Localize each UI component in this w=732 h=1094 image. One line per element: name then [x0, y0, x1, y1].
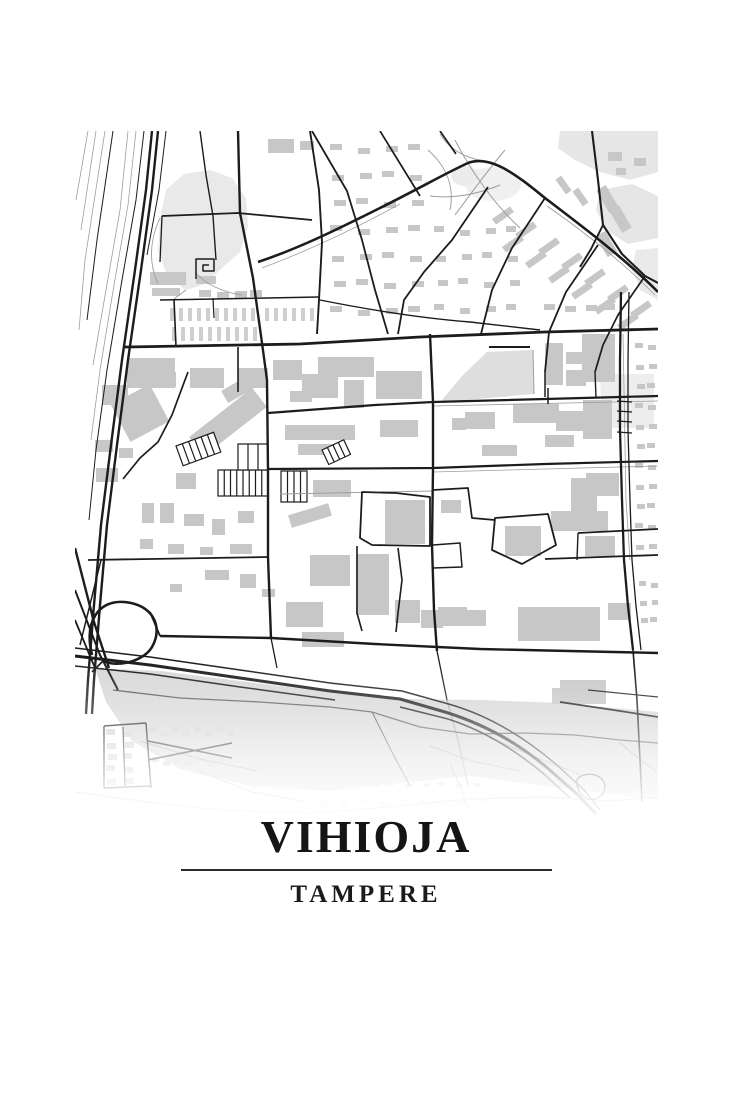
building: [218, 757, 225, 762]
building: [233, 308, 237, 321]
building: [566, 352, 582, 364]
building: [320, 773, 327, 777]
building: [183, 731, 190, 736]
building: [200, 547, 213, 555]
building: [376, 371, 422, 399]
building: [648, 405, 656, 410]
building: [382, 171, 394, 177]
building: [181, 327, 185, 341]
building: [125, 778, 134, 784]
building: [649, 484, 657, 489]
building: [188, 308, 192, 321]
building: [513, 404, 559, 423]
building: [408, 144, 420, 150]
building: [637, 444, 645, 449]
building: [440, 772, 447, 776]
building: [452, 418, 466, 430]
building: [360, 173, 372, 179]
building: [384, 283, 396, 289]
building: [244, 327, 248, 341]
building: [586, 766, 594, 771]
building: [124, 731, 133, 737]
building: [636, 485, 644, 490]
building: [168, 544, 184, 554]
building: [185, 761, 192, 766]
building: [586, 305, 597, 311]
building: [380, 420, 418, 437]
building: [583, 400, 612, 439]
building: [285, 425, 355, 440]
building: [274, 308, 278, 321]
building: [386, 227, 398, 233]
building: [647, 503, 655, 508]
building: [253, 327, 257, 341]
building: [217, 292, 229, 299]
building: [438, 782, 445, 786]
building: [215, 308, 219, 321]
building: [197, 308, 201, 321]
building: [285, 782, 292, 786]
building: [303, 784, 310, 788]
building: [270, 783, 277, 787]
building: [508, 256, 518, 262]
building: [628, 762, 636, 767]
building: [205, 731, 212, 736]
building: [637, 504, 645, 509]
building: [486, 228, 496, 234]
building: [334, 200, 346, 206]
building: [551, 511, 608, 531]
building: [163, 761, 170, 766]
building: [635, 403, 643, 408]
building: [648, 345, 656, 350]
building: [321, 783, 328, 787]
building: [474, 783, 481, 787]
building: [405, 784, 412, 788]
building: [199, 290, 211, 297]
building: [190, 368, 224, 388]
building: [106, 765, 115, 771]
building: [412, 200, 424, 206]
building: [434, 226, 444, 232]
building: [608, 152, 622, 161]
building: [479, 799, 485, 803]
building: [460, 308, 470, 314]
building: [462, 254, 472, 260]
building: [640, 601, 647, 606]
building: [196, 276, 216, 284]
building: [606, 778, 614, 783]
building: [226, 327, 230, 341]
building: [170, 584, 182, 592]
building: [560, 680, 606, 704]
building: [108, 754, 117, 760]
building: [106, 729, 115, 735]
road: [577, 533, 578, 560]
building: [334, 281, 346, 287]
building: [301, 308, 305, 321]
building: [455, 771, 462, 775]
building: [170, 308, 174, 321]
building: [458, 278, 468, 284]
building: [140, 539, 153, 549]
building: [641, 618, 648, 623]
building: [408, 306, 420, 312]
building: [389, 772, 396, 776]
building: [610, 764, 618, 769]
building: [556, 411, 584, 431]
building: [227, 731, 234, 736]
building: [588, 780, 596, 785]
building: [107, 743, 116, 749]
building: [401, 800, 407, 804]
building: [160, 503, 174, 523]
building: [216, 727, 223, 732]
building: [292, 308, 296, 321]
building: [287, 772, 294, 776]
building: [506, 304, 516, 310]
building: [313, 480, 351, 497]
building: [410, 175, 422, 181]
building: [634, 158, 646, 166]
building: [510, 280, 520, 286]
building: [635, 343, 643, 348]
building: [212, 519, 225, 535]
building: [179, 308, 183, 321]
map-canvas: [75, 131, 658, 845]
building: [385, 500, 425, 544]
building: [286, 602, 323, 627]
building: [544, 304, 555, 310]
building: [387, 782, 394, 786]
building: [172, 727, 179, 732]
building: [302, 771, 309, 775]
building: [176, 473, 196, 489]
building: [269, 773, 276, 777]
building: [408, 225, 420, 231]
building: [190, 327, 194, 341]
building: [332, 256, 344, 262]
map-poster: VIHIOJA TAMPERE: [0, 0, 732, 1094]
title-divider: [181, 869, 552, 871]
building: [107, 779, 116, 785]
building: [359, 799, 365, 803]
building: [268, 139, 294, 153]
building: [194, 727, 201, 732]
building: [252, 784, 259, 788]
building: [608, 750, 616, 755]
building: [434, 304, 444, 310]
building: [217, 327, 221, 341]
building: [124, 767, 133, 773]
building: [380, 801, 386, 805]
building: [336, 782, 343, 786]
building: [152, 288, 180, 296]
building: [205, 570, 229, 580]
building: [438, 280, 448, 286]
city-map: [75, 131, 658, 845]
building: [119, 448, 133, 458]
building: [506, 226, 516, 232]
building: [637, 384, 645, 389]
building: [341, 800, 347, 804]
building: [358, 310, 370, 316]
building: [230, 544, 252, 554]
building: [356, 554, 389, 615]
building: [473, 773, 480, 777]
building: [320, 801, 326, 805]
building: [358, 148, 370, 154]
building: [371, 773, 378, 777]
building: [419, 799, 425, 803]
building: [441, 500, 461, 513]
building: [635, 523, 643, 528]
building: [206, 308, 210, 321]
building: [208, 327, 212, 341]
building: [152, 372, 176, 387]
building: [330, 306, 342, 312]
building: [423, 783, 430, 787]
building: [518, 607, 600, 641]
building: [649, 364, 657, 369]
building: [242, 308, 246, 321]
building: [630, 782, 638, 787]
building: [639, 581, 646, 586]
poster-title: VIHIOJA: [0, 810, 732, 863]
building: [649, 544, 657, 549]
building: [482, 252, 492, 258]
building: [636, 545, 644, 550]
building: [356, 279, 368, 285]
building: [650, 617, 657, 622]
building: [125, 742, 134, 748]
building: [545, 435, 574, 447]
building: [585, 536, 615, 556]
building: [290, 391, 312, 402]
building: [344, 380, 364, 408]
building: [604, 304, 615, 310]
building: [283, 308, 287, 321]
building: [251, 771, 258, 775]
building: [273, 360, 302, 380]
building: [353, 771, 360, 775]
building: [150, 727, 157, 732]
building: [460, 230, 470, 236]
building: [338, 772, 345, 776]
building: [142, 503, 154, 523]
building: [382, 252, 394, 258]
building: [265, 308, 269, 321]
building: [649, 424, 657, 429]
building: [310, 555, 350, 586]
building: [422, 773, 429, 777]
building: [199, 327, 203, 341]
building: [647, 443, 655, 448]
building: [647, 383, 655, 388]
building: [565, 306, 576, 312]
building: [651, 583, 658, 588]
building: [482, 445, 517, 456]
building: [356, 198, 368, 204]
building: [354, 784, 361, 788]
building: [410, 256, 422, 262]
building: [616, 168, 626, 175]
building: [161, 731, 168, 736]
building: [636, 365, 644, 370]
building: [636, 425, 644, 430]
road: [595, 372, 596, 397]
building: [505, 526, 541, 556]
building: [238, 511, 254, 523]
building: [635, 463, 643, 468]
row-house-block: [238, 444, 268, 470]
building: [235, 327, 239, 341]
poster-subtitle: TAMPERE: [0, 881, 732, 909]
building: [584, 746, 592, 751]
building: [310, 308, 314, 321]
building: [462, 610, 486, 626]
building: [174, 757, 181, 762]
building: [224, 308, 228, 321]
building: [251, 308, 255, 321]
building: [465, 412, 495, 429]
building: [404, 771, 411, 775]
building: [330, 144, 342, 150]
building: [372, 783, 379, 787]
building: [586, 473, 619, 496]
building: [184, 514, 204, 526]
building: [652, 600, 658, 605]
building: [240, 574, 256, 588]
